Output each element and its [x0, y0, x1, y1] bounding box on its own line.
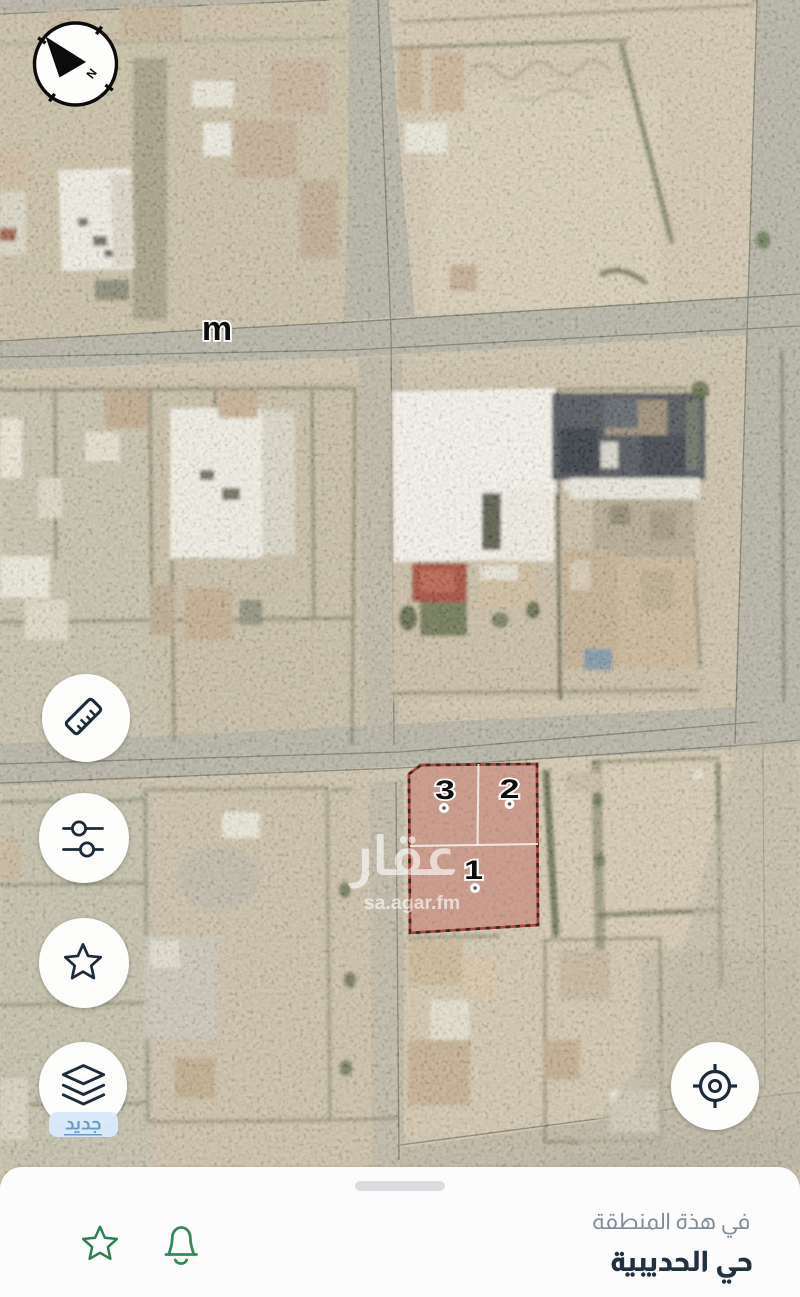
svg-text:sa.agar.fm: sa.agar.fm — [364, 892, 460, 914]
svg-text:m: m — [202, 310, 232, 348]
svg-text:1: 1 — [464, 855, 483, 885]
svg-text:3: 3 — [435, 774, 455, 805]
